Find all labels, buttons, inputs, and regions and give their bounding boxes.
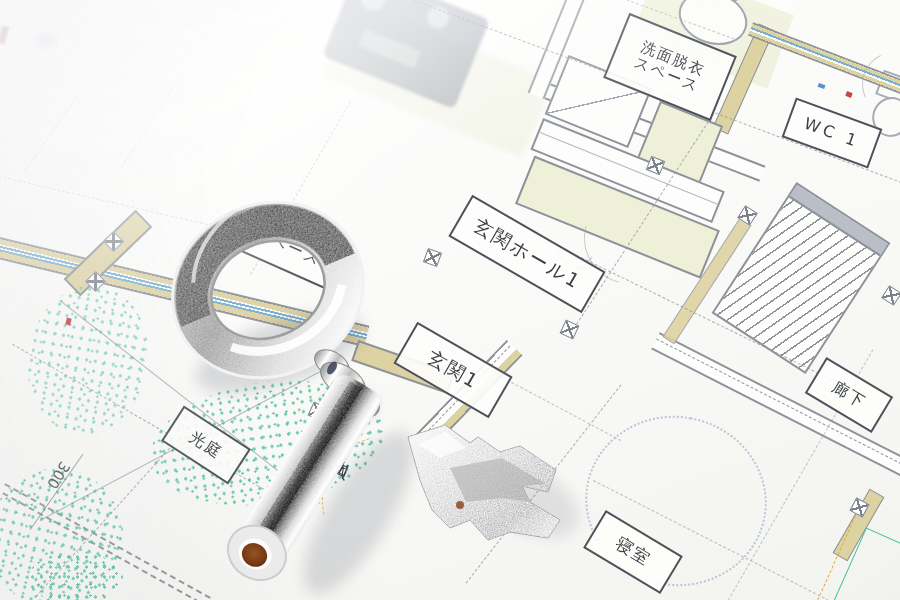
- red-edge-mark: [0, 25, 9, 44]
- vegetation-cluster: [16, 276, 160, 445]
- red-tick: [845, 91, 852, 98]
- photo-key-on-floorplan: 洗面脱衣 スペース WC 1 玄関ホール1 玄関1 廊下 光庭 寝室 ペース 出…: [0, 0, 900, 600]
- stairs-icon: [712, 182, 891, 374]
- blue-tick: [818, 83, 826, 89]
- vegetation-cluster: [28, 552, 123, 600]
- silver-key: [150, 168, 580, 600]
- post-marker: [881, 285, 900, 306]
- key-bit: [408, 425, 560, 540]
- key-shaft: [218, 368, 388, 591]
- paper-smudge: [36, 32, 58, 49]
- label-wc: WC 1: [782, 98, 883, 169]
